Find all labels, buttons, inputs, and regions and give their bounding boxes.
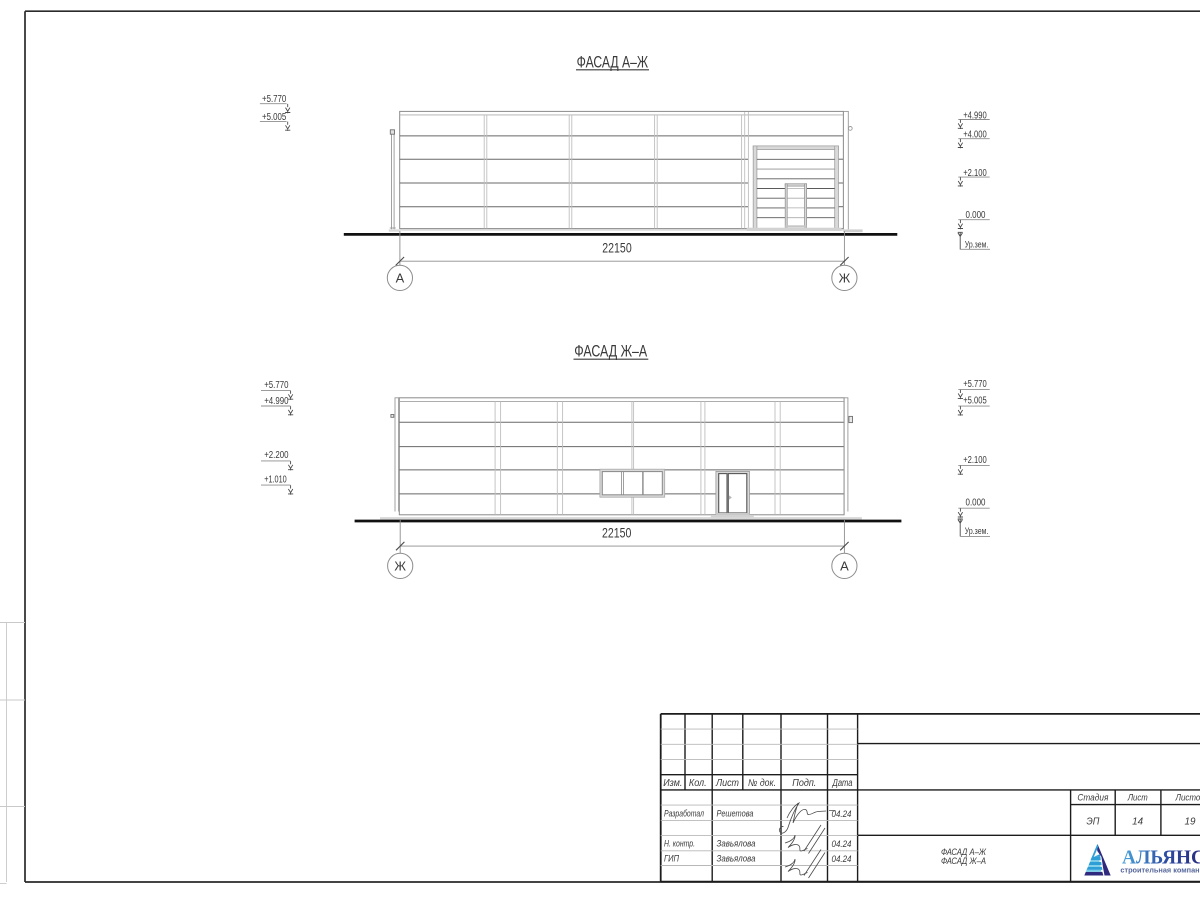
svg-text:14: 14 [1132, 816, 1144, 827]
svg-text:Кол.: Кол. [689, 778, 707, 789]
svg-text:строительная компания: строительная компания [1120, 866, 1200, 875]
svg-text:Разработал: Разработал [664, 808, 704, 818]
svg-text:Подп.: Подп. [792, 778, 816, 789]
svg-text:Завьялова: Завьялова [717, 854, 756, 864]
svg-text:Ж: Ж [839, 271, 851, 286]
svg-text:ФАСАД Ж–А: ФАСАД Ж–А [941, 856, 986, 867]
svg-text:+2.100: +2.100 [963, 455, 987, 466]
svg-text:+5.005: +5.005 [963, 396, 987, 407]
svg-text:Дата: Дата [832, 778, 853, 789]
svg-text:04.24: 04.24 [832, 854, 852, 864]
svg-text:+1.010: +1.010 [264, 475, 287, 486]
svg-text:А: А [396, 271, 405, 286]
svg-text:0.000: 0.000 [966, 498, 986, 509]
svg-text:А: А [840, 559, 849, 574]
svg-text:Завьялова: Завьялова [717, 838, 756, 848]
svg-text:ФАСАД А–Ж: ФАСАД А–Ж [577, 52, 649, 71]
svg-text:ЭП: ЭП [1086, 816, 1100, 827]
svg-text:№ док.: № док. [748, 778, 776, 789]
svg-text:Решетова: Решетова [717, 808, 754, 818]
svg-text:+5.770: +5.770 [963, 379, 987, 390]
svg-text:Изм.: Изм. [663, 778, 682, 789]
svg-text:ГИП: ГИП [664, 854, 679, 864]
svg-text:Лист: Лист [1127, 793, 1148, 804]
svg-text:+4.990: +4.990 [264, 396, 289, 407]
svg-text:+2.200: +2.200 [264, 450, 289, 461]
svg-text:04.24: 04.24 [832, 839, 852, 849]
svg-text:+5.770: +5.770 [264, 380, 289, 391]
svg-text:19: 19 [1185, 816, 1197, 827]
svg-text:Ур.зем.: Ур.зем. [965, 526, 989, 536]
svg-text:ФАСАД Ж–А: ФАСАД Ж–А [574, 341, 648, 360]
svg-text:Листов: Листов [1175, 793, 1200, 804]
svg-text:Ур.зем.: Ур.зем. [965, 240, 989, 250]
svg-text:Н. контр.: Н. контр. [664, 838, 695, 848]
svg-text:Ж: Ж [394, 559, 406, 574]
svg-text:22150: 22150 [602, 525, 632, 541]
svg-text:22150: 22150 [602, 239, 632, 255]
svg-text:Стадия: Стадия [1077, 793, 1108, 804]
svg-text:Лист: Лист [715, 778, 739, 789]
